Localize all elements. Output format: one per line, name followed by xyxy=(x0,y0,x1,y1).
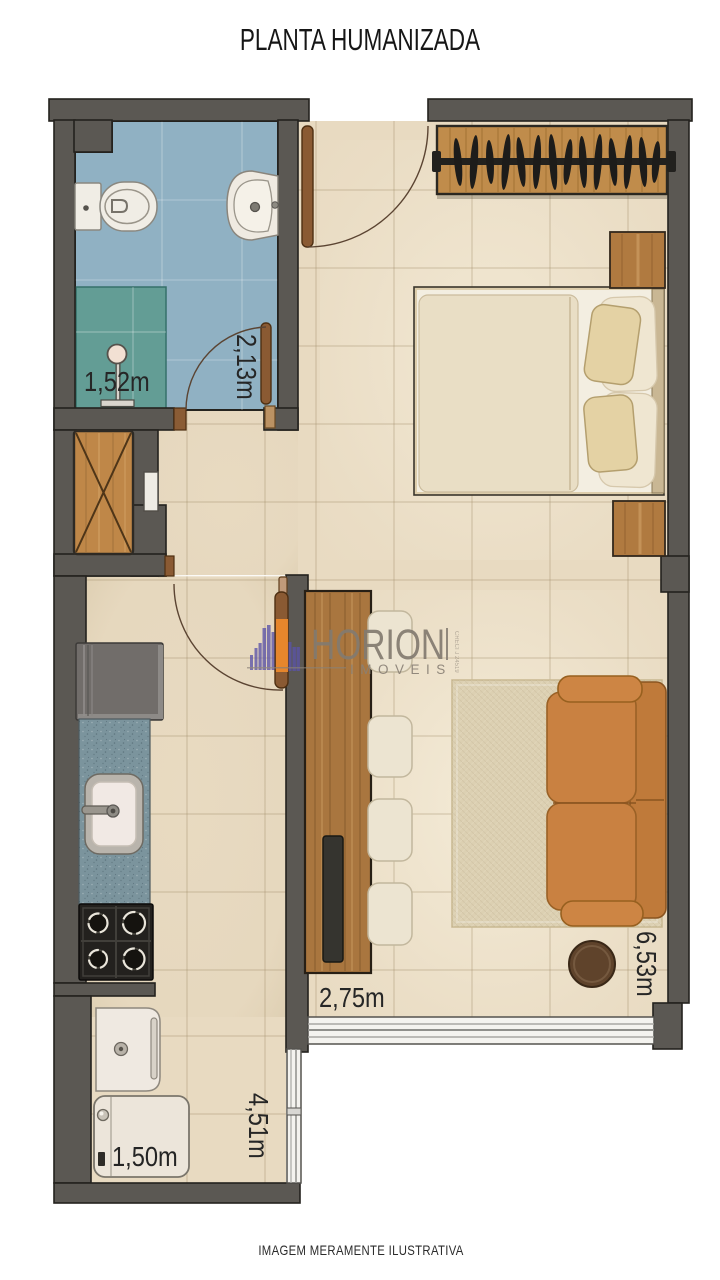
svg-text:IMAGEM MERAMENTE ILUSTRATIVA: IMAGEM MERAMENTE ILUSTRATIVA xyxy=(258,1243,464,1258)
svg-text:6,53m: 6,53m xyxy=(631,931,661,997)
svg-text:CRECI J 24519: CRECI J 24519 xyxy=(453,631,459,673)
svg-text:2,75m: 2,75m xyxy=(319,983,385,1013)
svg-text:PLANTA HUMANIZADA: PLANTA HUMANIZADA xyxy=(240,23,480,57)
svg-text:IMOVEIS: IMOVEIS xyxy=(350,662,452,677)
svg-text:1,52m: 1,52m xyxy=(84,367,150,397)
svg-text:1,50m: 1,50m xyxy=(112,1142,178,1172)
svg-text:2,13m: 2,13m xyxy=(231,334,261,400)
svg-text:4,51m: 4,51m xyxy=(243,1093,273,1159)
